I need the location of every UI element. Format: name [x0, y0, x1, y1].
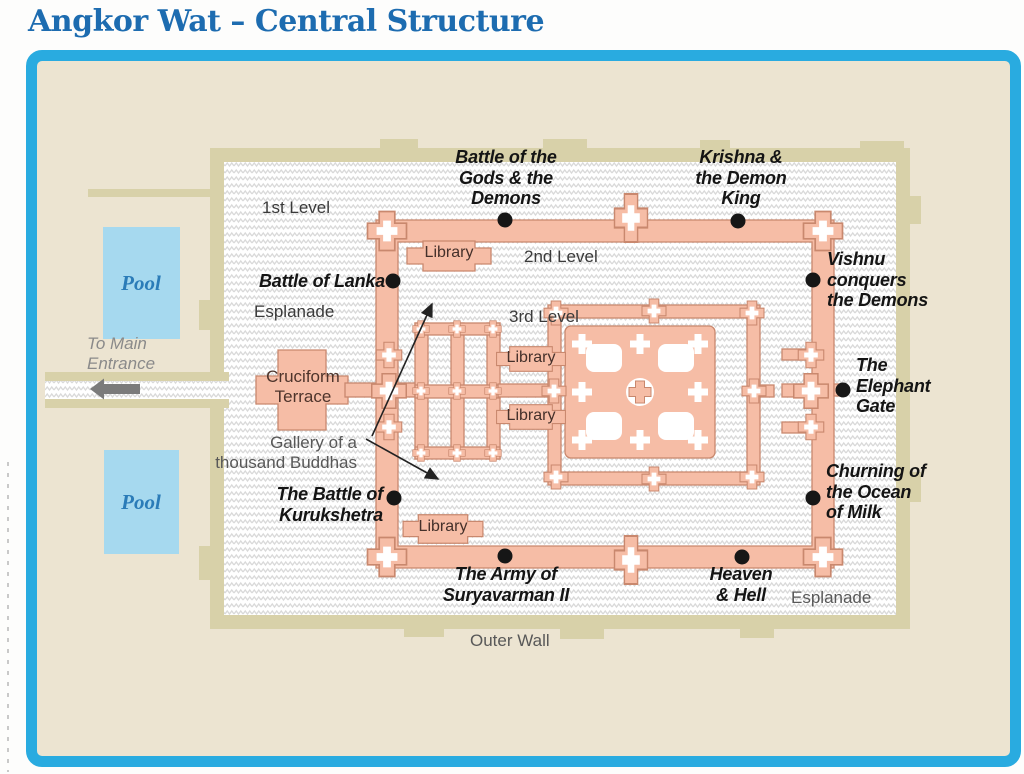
label-army-of-suryavarman: The Army of Suryavarman II	[443, 564, 569, 605]
relief-dot	[735, 550, 750, 565]
label-gallery-thousand-buddhas: Gallery of a thousand Buddhas	[215, 433, 357, 472]
label-elephant-gate: The Elephant Gate	[856, 355, 930, 417]
label-library-west-upper: Library	[507, 349, 556, 368]
relief-dot	[498, 213, 513, 228]
label-library-west-lower: Library	[507, 407, 556, 426]
label-pool-south: Pool	[121, 490, 161, 514]
label-heaven-and-hell: Heaven & Hell	[710, 564, 773, 605]
infographic-stage: Angkor Wat – Central Structure	[0, 0, 1024, 774]
label-third-level: 3rd Level	[509, 307, 579, 327]
pool-enclosure-wall	[88, 189, 216, 197]
label-to-main-entrance: To Main Entrance	[87, 334, 155, 373]
label-battle-of-lanka: Battle of Lanka	[259, 271, 385, 292]
label-first-level: 1st Level	[262, 198, 330, 218]
label-second-level: 2nd Level	[524, 247, 598, 267]
label-library-northwest: Library	[425, 244, 474, 263]
relief-dot	[836, 383, 851, 398]
label-esplanade-west: Esplanade	[254, 302, 334, 322]
relief-dot	[806, 491, 821, 506]
label-library-southwest: Library	[419, 518, 468, 537]
relief-dot	[806, 273, 821, 288]
label-vishnu-conquers-demons: Vishnu conquers the Demons	[827, 249, 928, 311]
label-battle-gods-demons: Battle of the Gods & the Demons	[455, 147, 556, 209]
label-cruciform-terrace: Cruciform Terrace	[266, 367, 340, 406]
relief-dot	[387, 491, 402, 506]
label-outer-wall: Outer Wall	[470, 631, 550, 651]
label-battle-of-kurukshetra: The Battle of Kurukshetra	[277, 484, 383, 525]
label-esplanade-southeast: Esplanade	[791, 588, 871, 608]
relief-dot	[498, 549, 513, 564]
relief-dot	[386, 274, 401, 289]
label-pool-north: Pool	[121, 271, 161, 295]
label-krishna-demon-king: Krishna & the Demon King	[695, 147, 786, 209]
label-churning-ocean-milk: Churning of the Ocean of Milk	[826, 461, 926, 523]
relief-dot	[731, 214, 746, 229]
